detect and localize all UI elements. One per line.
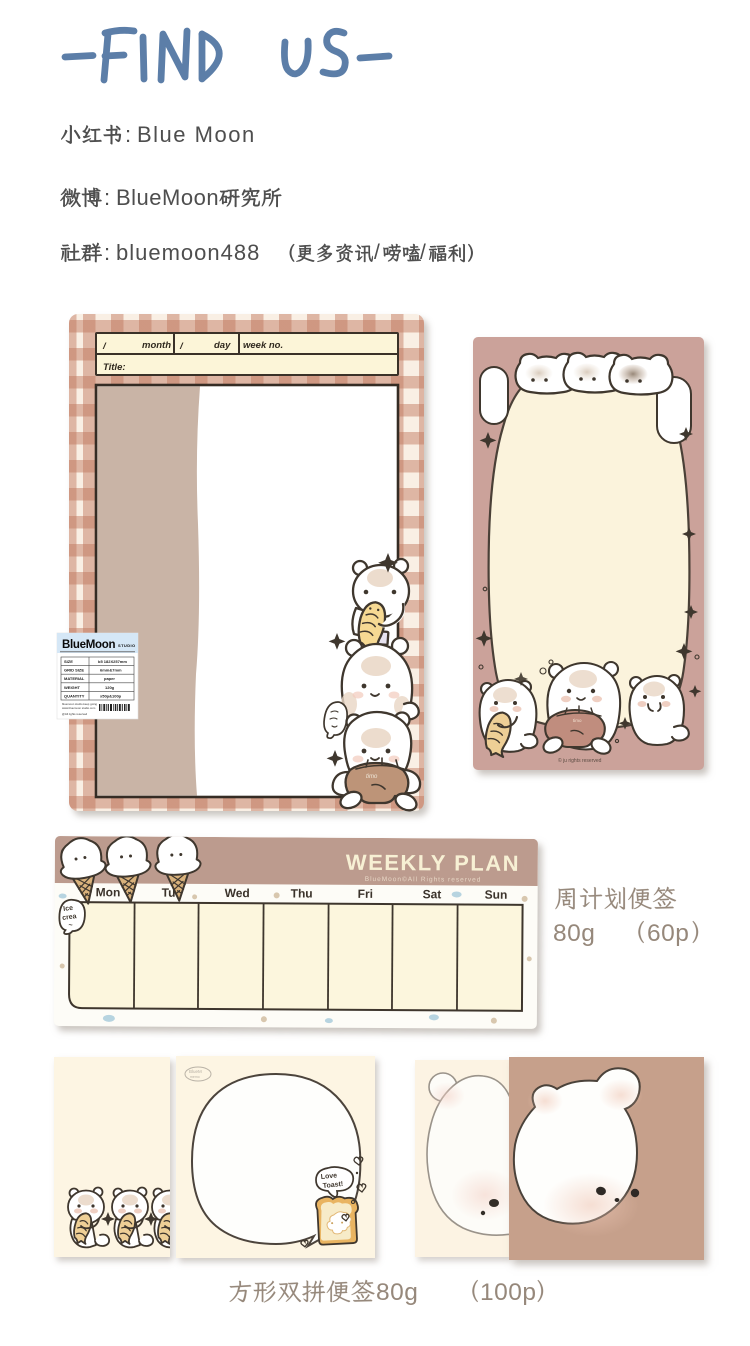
- svg-text:80g: 80g: [376, 1279, 418, 1306]
- svg-text:BlueMoon: BlueMoon: [116, 185, 219, 210]
- svg-text:x50p&100p: x50p&100p: [100, 693, 122, 698]
- svg-text:MATERIAL: MATERIAL: [64, 676, 85, 681]
- svg-text:Sun: Sun: [485, 888, 508, 902]
- svg-text:WEEKLY PLAN: WEEKLY PLAN: [346, 850, 520, 876]
- svg-text:60p: 60p: [647, 920, 689, 947]
- svg-text:month: month: [142, 340, 171, 351]
- svg-text::: :: [104, 240, 110, 265]
- svg-text:Ice: Ice: [63, 905, 74, 913]
- svg-text:/: /: [374, 241, 380, 264]
- svg-text:BlueM: BlueM: [189, 1069, 202, 1074]
- svg-text::: :: [104, 185, 110, 210]
- svg-text:timo: timo: [366, 774, 378, 780]
- svg-text:memo: memo: [190, 1075, 200, 1079]
- svg-text:WEIGHT: WEIGHT: [64, 685, 81, 690]
- svg-text:100p: 100p: [480, 1279, 537, 1306]
- svg-text:Mon: Mon: [96, 885, 121, 899]
- svg-text:@All rights reserved: @All rights reserved: [62, 712, 88, 716]
- svg-text:Blue Moon: Blue Moon: [137, 122, 256, 147]
- svg-text:GRID SIZE: GRID SIZE: [64, 668, 84, 673]
- svg-text:Thu: Thu: [291, 886, 313, 900]
- svg-text:BlueMoon: BlueMoon: [62, 639, 115, 651]
- svg-text:timo: timo: [573, 718, 582, 723]
- svg-text:/: /: [420, 241, 426, 264]
- svg-text:QUANTITY: QUANTITY: [64, 693, 85, 698]
- svg-text:Sat: Sat: [423, 887, 442, 901]
- svg-text:www.bluemoon studio.com: www.bluemoon studio.com: [62, 706, 96, 710]
- svg-text:BlueMoon©All Rights reserved: BlueMoon©All Rights reserved: [365, 875, 482, 884]
- svg-text:b5 182X257mm: b5 182X257mm: [98, 659, 127, 664]
- svg-text:Fri: Fri: [358, 887, 373, 901]
- svg-text:~: ~: [68, 922, 72, 929]
- svg-text:© ju rights reserved: © ju rights reserved: [558, 757, 602, 764]
- svg-text:Title:: Title:: [103, 362, 126, 373]
- svg-text:STUDIO: STUDIO: [118, 643, 136, 648]
- svg-text:day: day: [214, 340, 231, 351]
- svg-text:bluemoon488: bluemoon488: [116, 240, 260, 265]
- svg-text:80g: 80g: [553, 920, 595, 947]
- svg-text:120g: 120g: [105, 685, 115, 690]
- svg-text:paper: paper: [104, 676, 115, 681]
- svg-text:Wed: Wed: [225, 886, 250, 900]
- svg-text:week no.: week no.: [243, 340, 283, 351]
- svg-text:SIZE: SIZE: [64, 659, 73, 664]
- svg-text:6mm&7mm: 6mm&7mm: [100, 668, 122, 673]
- svg-text::: :: [125, 122, 132, 147]
